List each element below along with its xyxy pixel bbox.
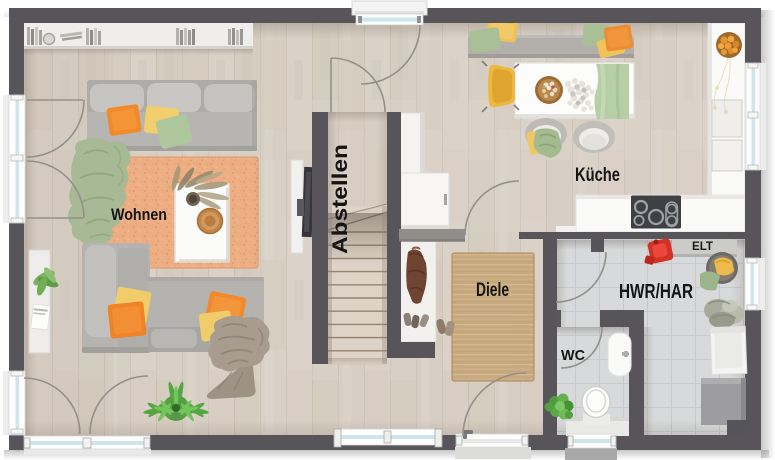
svg-text:ELT: ELT bbox=[692, 241, 713, 253]
svg-text:Diele: Diele bbox=[476, 280, 509, 301]
svg-text:Küche: Küche bbox=[575, 165, 620, 186]
svg-text:WC: WC bbox=[561, 347, 585, 364]
svg-text:Wohnen: Wohnen bbox=[111, 205, 167, 224]
svg-text:Abstellen: Abstellen bbox=[328, 144, 352, 254]
svg-text:HWR/HAR: HWR/HAR bbox=[619, 281, 693, 303]
